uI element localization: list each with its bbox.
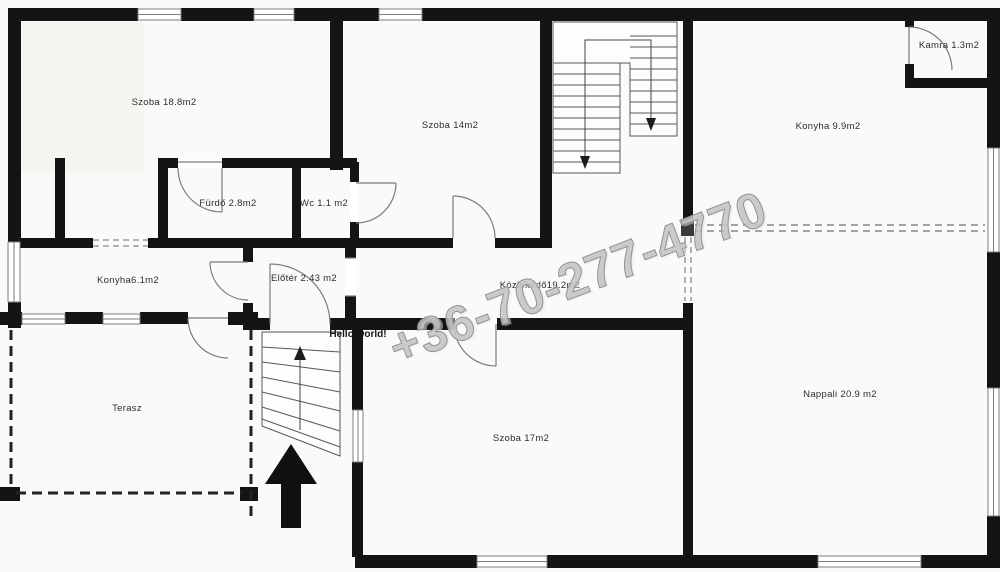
staircase-upper xyxy=(553,22,677,173)
room-label-nappali: Nappali 20.9 m2 xyxy=(803,389,877,400)
room-label-konyha-9: Konyha 9.9m2 xyxy=(796,121,861,132)
room-label-konyha-6: Konyha6.1m2 xyxy=(97,275,159,286)
floorplan-canvas: Szoba 18.8m2 Szoba 14m2 Kamra 1.3m2 Kony… xyxy=(0,0,1000,572)
hello-world-annotation: Hello world! xyxy=(329,329,386,340)
paper-shading xyxy=(14,22,144,172)
floorplan-page: Szoba 18.8m2 Szoba 14m2 Kamra 1.3m2 Kony… xyxy=(0,0,1000,572)
watermark-phone-number: +36-70-277-4770 xyxy=(381,180,775,376)
room-label-kamra: Kamra 1.3m2 xyxy=(919,40,979,51)
room-label-eloter: Előtér 2.43 m2 xyxy=(271,273,337,284)
room-label-szoba-14: Szoba 14m2 xyxy=(422,120,478,131)
room-label-szoba-18: Szoba 18.8m2 xyxy=(132,97,197,108)
room-label-szoba-17: Szoba 17m2 xyxy=(493,433,549,444)
terrace-boundary xyxy=(11,330,251,520)
room-label-wc: Wc 1.1 m2 xyxy=(300,198,348,209)
room-label-furdo: Fürdő 2.8m2 xyxy=(199,198,256,209)
entrance-arrow-icon xyxy=(265,444,317,528)
watermark: +36-70-277-4770 +36-70-277-4770 xyxy=(381,179,777,377)
room-label-terasz: Terasz xyxy=(112,403,142,414)
